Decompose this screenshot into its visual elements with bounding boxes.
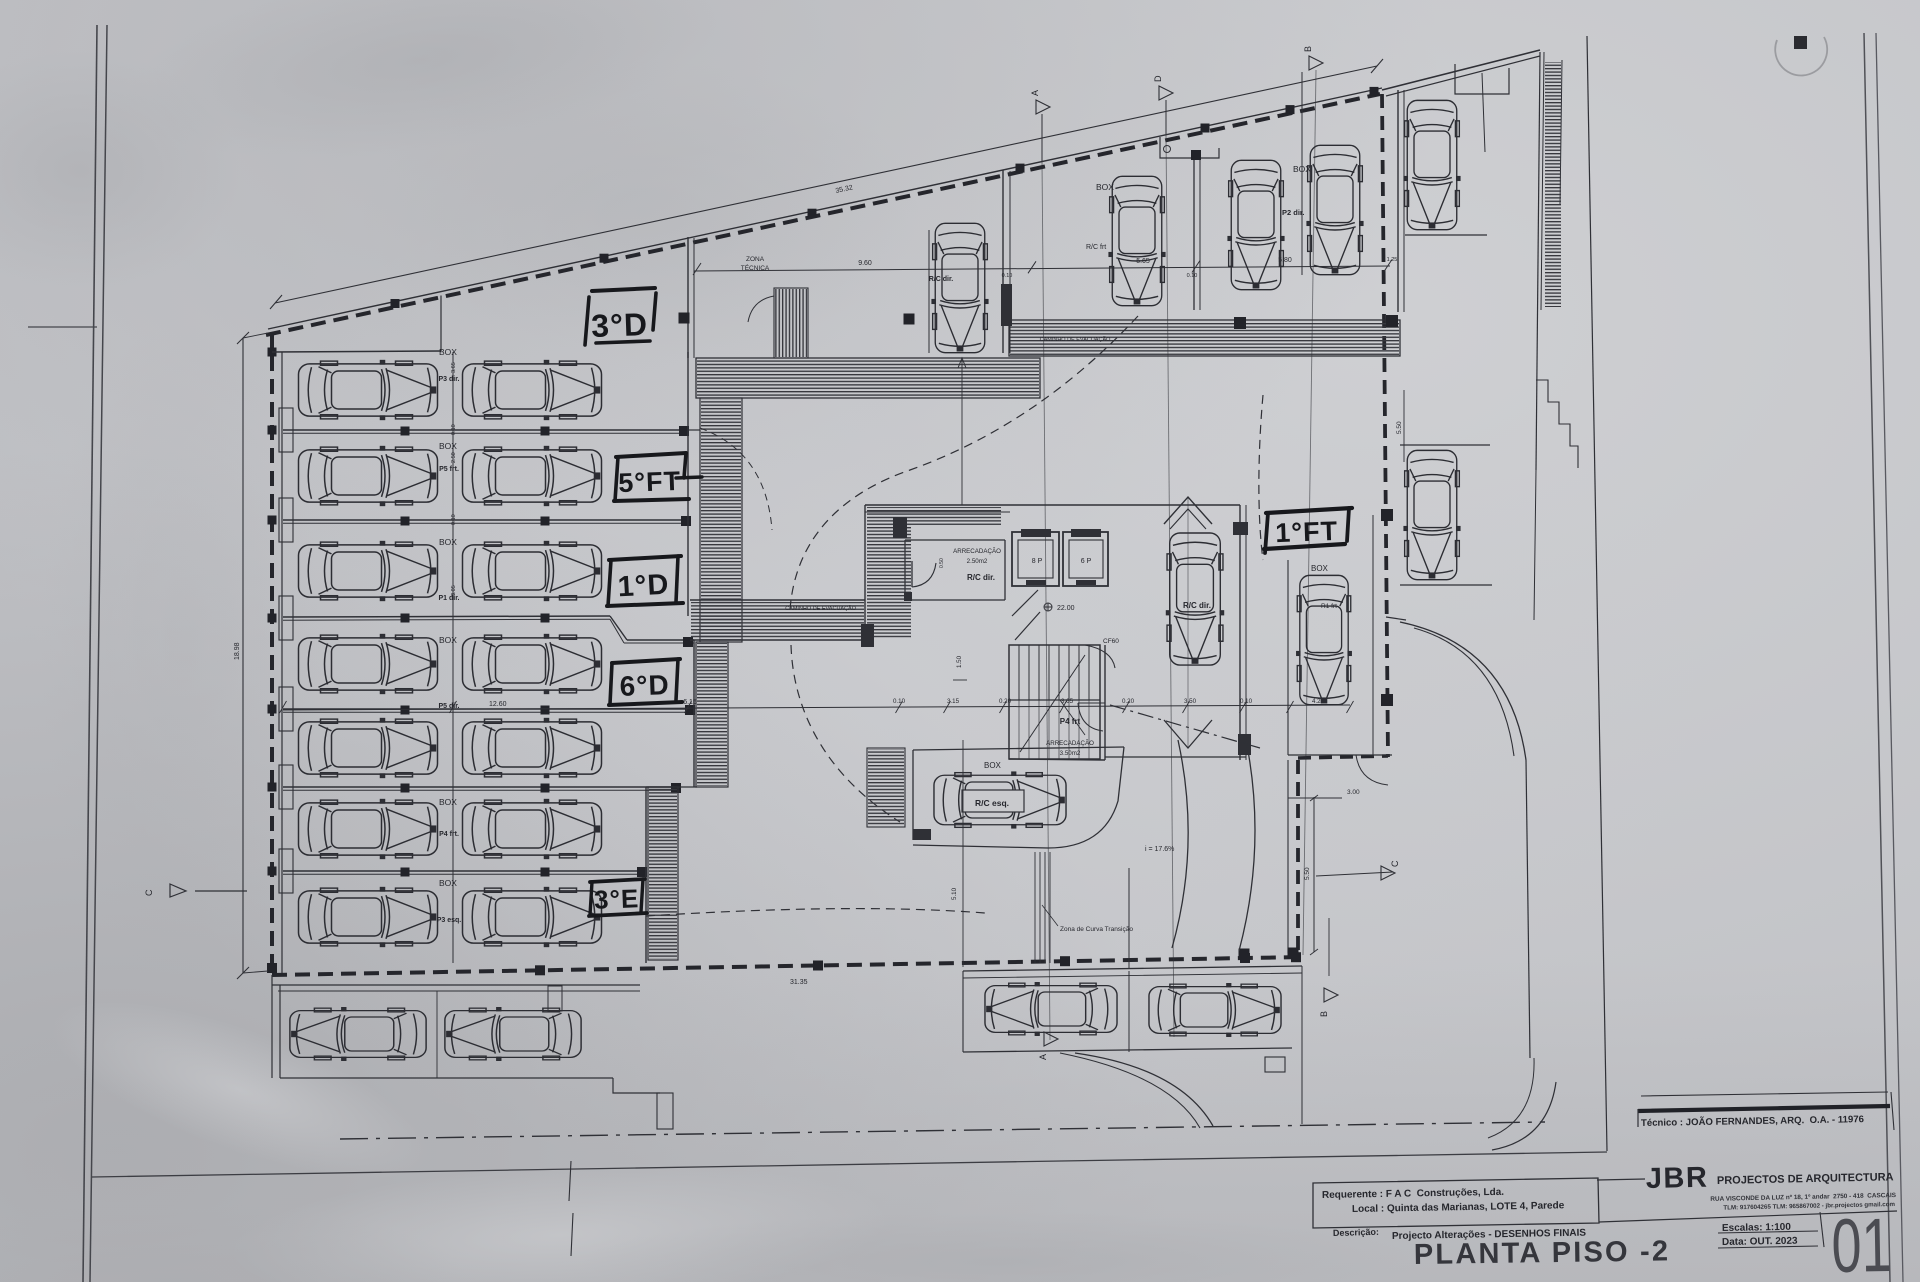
svg-text:BOX: BOX xyxy=(439,441,457,451)
svg-text:6°D: 6°D xyxy=(619,669,670,702)
svg-text:3.50m2: 3.50m2 xyxy=(1060,750,1081,757)
svg-text:2.50: 2.50 xyxy=(451,452,457,463)
svg-text:CF60: CF60 xyxy=(1103,638,1119,645)
svg-text:0.10: 0.10 xyxy=(1240,698,1253,705)
svg-text:BOX: BOX xyxy=(439,347,457,357)
svg-text:BOX: BOX xyxy=(439,878,457,888)
svg-text:P5 frt.: P5 frt. xyxy=(439,466,459,473)
svg-text:3.15: 3.15 xyxy=(947,698,960,705)
svg-text:3.05: 3.05 xyxy=(451,585,457,596)
svg-text:22.00: 22.00 xyxy=(1057,605,1075,612)
svg-text:B: B xyxy=(1319,1011,1329,1017)
svg-text:ARRECADAÇÃO: ARRECADAÇÃO xyxy=(1046,740,1094,747)
svg-text:3.00: 3.00 xyxy=(1347,789,1360,796)
svg-text:1°D: 1°D xyxy=(617,569,670,604)
svg-text:C: C xyxy=(144,889,154,896)
svg-text:P3 dir.: P3 dir. xyxy=(438,376,459,383)
svg-text:18.98: 18.98 xyxy=(234,642,241,660)
svg-text:3°E: 3°E xyxy=(594,883,640,915)
svg-text:0.10: 0.10 xyxy=(1187,273,1198,279)
svg-text:0.20: 0.20 xyxy=(999,698,1012,705)
svg-text:01: 01 xyxy=(1831,1203,1892,1282)
svg-text:C: C xyxy=(1390,860,1400,867)
svg-text:0.10: 0.10 xyxy=(451,514,457,525)
svg-text:P2 dir.: P2 dir. xyxy=(1282,208,1305,217)
svg-text:3°D: 3°D xyxy=(591,306,649,344)
svg-text:BOX: BOX xyxy=(984,761,1002,770)
svg-text:JBR: JBR xyxy=(1645,1162,1708,1195)
svg-text:R/C dir.: R/C dir. xyxy=(929,276,954,283)
svg-text:BOX: BOX xyxy=(439,635,457,645)
svg-text:CAMINHO DE EVACUAÇÃO: CAMINHO DE EVACUAÇÃO xyxy=(785,605,857,612)
svg-text:0.10: 0.10 xyxy=(1002,273,1013,279)
svg-text:5.50: 5.50 xyxy=(1396,421,1403,434)
svg-text:3.50: 3.50 xyxy=(1184,698,1197,705)
svg-text:A: A xyxy=(1030,90,1040,96)
svg-text:BOX: BOX xyxy=(439,537,457,547)
svg-text:5.50: 5.50 xyxy=(1304,867,1311,880)
svg-text:A: A xyxy=(1038,1054,1048,1060)
svg-text:1°FT: 1°FT xyxy=(1275,516,1339,548)
svg-text:3.65: 3.65 xyxy=(1061,698,1074,705)
svg-text:5°FT: 5°FT xyxy=(618,466,682,498)
svg-text:6.15: 6.15 xyxy=(683,699,697,706)
svg-text:Descrição:: Descrição: xyxy=(1333,1227,1379,1238)
svg-text:8 P: 8 P xyxy=(1032,558,1043,565)
svg-text:P3 esq.: P3 esq. xyxy=(437,917,462,924)
svg-text:0.20: 0.20 xyxy=(1122,698,1135,705)
svg-text:P4 frt: P4 frt xyxy=(1060,717,1081,726)
svg-text:1.25: 1.25 xyxy=(1387,257,1398,263)
svg-text:9.60: 9.60 xyxy=(858,260,872,267)
svg-text:BOX: BOX xyxy=(1311,564,1329,573)
svg-text:CAMINHO DE EVACUAÇÃO: CAMINHO DE EVACUAÇÃO xyxy=(1040,336,1112,343)
svg-text:5.10: 5.10 xyxy=(951,887,958,900)
svg-text:0.10: 0.10 xyxy=(893,698,906,705)
svg-text:B: B xyxy=(1303,46,1313,52)
svg-text:R1 frt: R1 frt xyxy=(1321,603,1337,610)
svg-text:R/C esq.: R/C esq. xyxy=(975,798,1009,808)
svg-text:ZONA: ZONA xyxy=(746,256,765,263)
svg-text:0.10: 0.10 xyxy=(451,424,457,435)
svg-text:3.65: 3.65 xyxy=(451,362,457,373)
svg-text:R/C frt: R/C frt xyxy=(1086,244,1106,251)
svg-text:i = 17.6%: i = 17.6% xyxy=(1145,846,1174,853)
svg-text:BOX: BOX xyxy=(439,797,457,807)
svg-text:6 P: 6 P xyxy=(1081,558,1092,565)
svg-text:R/C dir.: R/C dir. xyxy=(967,573,995,582)
svg-text:2.50m2: 2.50m2 xyxy=(967,558,988,565)
svg-text:ARRECADAÇÃO: ARRECADAÇÃO xyxy=(953,548,1001,555)
svg-text:0.50: 0.50 xyxy=(939,558,945,568)
svg-text:12.60: 12.60 xyxy=(489,701,507,708)
svg-text:R/C dir.: R/C dir. xyxy=(1183,601,1211,610)
svg-text:D: D xyxy=(1153,75,1163,82)
svg-text:Zona de Curva Transição: Zona de Curva Transição xyxy=(1060,926,1133,933)
svg-text:BOX: BOX xyxy=(1096,182,1114,192)
svg-text:P4 frt.: P4 frt. xyxy=(439,831,459,838)
svg-text:1.50: 1.50 xyxy=(956,655,963,668)
svg-text:31.35: 31.35 xyxy=(790,979,808,986)
svg-text:PLANTA PISO -2: PLANTA PISO -2 xyxy=(1414,1235,1671,1271)
